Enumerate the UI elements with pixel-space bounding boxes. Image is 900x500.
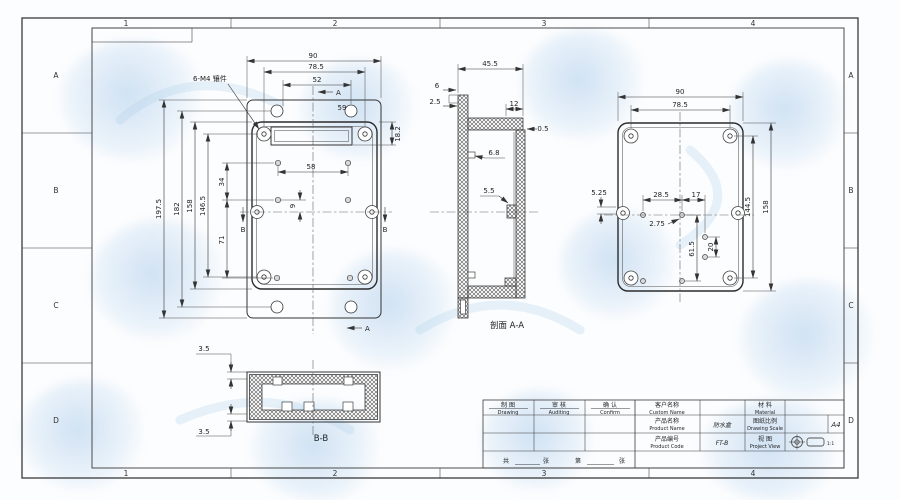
product-name-value: 防水盒 (713, 421, 732, 429)
back-bosses (617, 129, 745, 285)
product-code-value: FT-B (716, 440, 729, 447)
dim-front-boss-height: 146.5 (199, 196, 207, 216)
dim-aa-wall-top: 12 (510, 100, 519, 108)
drawing-scale-label-en: Drawing Scale (747, 426, 783, 432)
dim-front-hole-span: 59 (338, 104, 347, 112)
dim-aa-lip-b: 2.5 (429, 98, 440, 106)
grid-row-right-d: D (848, 416, 854, 425)
dim-aa-rib: 6.8 (488, 149, 499, 157)
dim-back-pitch-b: 17 (692, 191, 701, 199)
outer-border (22, 18, 858, 478)
section-arrow-a-bottom: A (365, 325, 370, 333)
dim-back-edge-offset: 5.25 (591, 189, 607, 197)
dim-front-row-gap2: 71 (218, 236, 226, 245)
confirm-label-zh: 确 认 (603, 401, 617, 409)
dim-back-pitch-a: 28.5 (653, 191, 669, 199)
dim-front-flange-width: 78.5 (308, 63, 324, 71)
aa-top-slab (468, 118, 523, 130)
interior-holes (274, 160, 352, 280)
bb-dimensions: 3.5 3.5 (196, 345, 247, 436)
dim-back-pitch-d: 61.5 (688, 241, 696, 257)
page-row-di: 第 (575, 457, 581, 465)
front-dimensions: 90 78.5 52 A 59 18.2 58 9 (155, 52, 402, 333)
project-view-label-en: Project View (750, 444, 781, 450)
material-label-zh: 材 料 (758, 401, 772, 409)
title-block-signature-cells: 制 图 Drawing 审 核 Auditing 确 认 Confirm (489, 401, 630, 416)
grid-col-bottom-2: 2 (333, 469, 338, 478)
section-bb-label: B-B (314, 434, 329, 444)
dim-aa-boss: 5.5 (483, 187, 494, 195)
revision-box (92, 28, 192, 42)
grid-col-top-4: 4 (751, 19, 756, 28)
dim-back-offset-c: 2.75 (649, 220, 665, 228)
page-row-zhang1: 张 (543, 457, 549, 465)
back-outline (618, 123, 743, 291)
grid-col-bottom-1: 1 (124, 469, 129, 478)
front-view: 90 78.5 52 A 59 18.2 58 9 (155, 52, 402, 334)
grid-col-bottom-3: 3 (542, 469, 547, 478)
grid-col-bottom-4: 4 (751, 469, 756, 478)
dim-back-hole-width: 78.5 (672, 101, 688, 109)
auditing-label-en: Auditing (549, 410, 570, 416)
product-name-label-en: Product Name (649, 426, 684, 432)
page-row-zhang2: 张 (619, 457, 625, 465)
grid-col-top-2: 2 (333, 19, 338, 28)
grid-row-left-c: C (53, 301, 58, 310)
grid-row-right-a: A (848, 71, 854, 80)
grid-row-left-d: D (53, 416, 59, 425)
dim-back-overall-height: 158 (762, 200, 770, 213)
grid-col-top-3: 3 (542, 19, 547, 28)
dim-front-row-gap1: 34 (218, 177, 226, 186)
drawing-label-en: Drawing (498, 410, 519, 416)
dim-front-overall-width: 90 (309, 52, 318, 60)
dim-front-recess-height: 18.2 (394, 126, 402, 142)
dim-back-overall-width: 90 (676, 88, 685, 96)
back-view: 90 78.5 5.25 28.5 17 2.75 61.5 (591, 88, 776, 302)
drawing-canvas: 1 2 3 4 1 2 3 4 A B C D A B C D (0, 0, 900, 500)
projection-symbol: 1:1 (789, 435, 834, 450)
dim-front-hole-height: 182 (173, 202, 181, 215)
drawing-sheet: 1 2 3 4 1 2 3 4 A B C D A B C D (0, 0, 900, 500)
product-name-label-zh: 产品名称 (655, 417, 679, 425)
section-arrow-b-right: B (383, 226, 388, 234)
auditing-label-zh: 审 核 (552, 401, 566, 409)
section-aa-label: 剖面 A-A (490, 320, 524, 331)
body-outline (252, 122, 377, 289)
grid-col-top-1: 1 (124, 19, 129, 28)
custom-name-label-en: Custom Name (649, 410, 685, 416)
material-label-en: Material (755, 410, 775, 416)
aa-right-wall (516, 130, 525, 298)
back-dimensions: 90 78.5 5.25 28.5 17 2.75 61.5 (591, 88, 776, 291)
product-code-label-en: Product Code (650, 444, 683, 450)
dim-front-body-height: 158 (186, 199, 194, 212)
section-arrow-b-left: B (241, 226, 246, 234)
recess-window (271, 127, 352, 145)
title-block: 制 图 Drawing 审 核 Auditing 确 认 Confirm 客户名… (483, 400, 844, 468)
dim-aa-depth: 45.5 (482, 60, 498, 68)
product-code-label-zh: 产品编号 (655, 435, 679, 443)
section-arrow-a-top: A (336, 89, 341, 97)
dim-front-overall-height: 197.5 (155, 199, 163, 219)
custom-name-label-zh: 客户名称 (655, 401, 679, 409)
insert-callout-text: 6-M4 镶件 (193, 74, 227, 83)
project-view-label-zh: 视 图 (758, 435, 772, 443)
dim-bb-lip-top: 3.5 (198, 345, 209, 353)
aa-dimensions: 45.5 6 2.5 12 0.5 6.8 5.5 (429, 60, 548, 203)
aa-left-wall (458, 95, 468, 298)
grid-row-left-a: A (53, 71, 59, 80)
grid-row-left-b: B (53, 186, 58, 195)
dim-back-hole-height: 144.5 (744, 197, 752, 217)
paper-size: A4 (830, 421, 840, 429)
dim-bb-lip-bottom: 3.5 (198, 428, 209, 436)
grid-row-right-c: C (848, 301, 853, 310)
page-row-gong: 共 (503, 457, 509, 465)
corner-bosses (251, 127, 379, 284)
aa-bottom-slab (468, 286, 516, 298)
drawing-scale-label-zh: 图纸比例 (753, 417, 777, 425)
title-block-page-row: 共 张 第 张 (503, 457, 625, 465)
dim-front-offset-y: 9 (289, 204, 297, 208)
section-aa-view: 45.5 6 2.5 12 0.5 6.8 5.5 剖面 A-A (429, 60, 548, 331)
projection-note: 1:1 (827, 441, 834, 447)
drawing-label-zh: 制 图 (501, 401, 515, 409)
dim-aa-gap: 0.5 (537, 125, 548, 133)
dim-aa-lip-a: 6 (435, 82, 440, 90)
dim-back-pitch-e: 20 (707, 243, 715, 252)
confirm-label-en: Confirm (600, 410, 620, 416)
grid-row-right-b: B (848, 186, 853, 195)
dim-front-pitch-x: 58 (307, 163, 316, 171)
dim-front-slot-width: 52 (313, 76, 322, 84)
sheet-frame: 1 2 3 4 1 2 3 4 A B C D A B C D (22, 18, 858, 478)
